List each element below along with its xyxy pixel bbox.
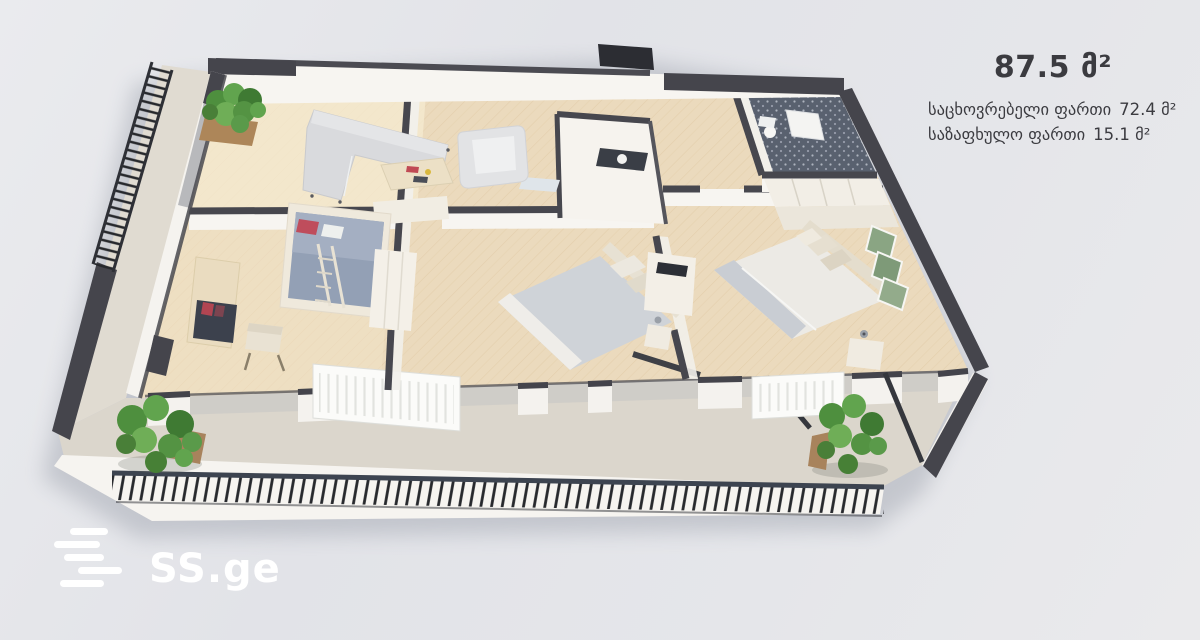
living-area-line: საცხოვრებელი ფართი72.4 მ² [928, 97, 1178, 122]
shower-tray [786, 110, 824, 140]
listing-image: 87.5 მ² საცხოვრებელი ფართი72.4 მ² საზაფხ… [0, 0, 1200, 640]
ssge-logo: SS.ge [54, 528, 281, 589]
wardrobe-room [764, 179, 899, 230]
summer-area-line: საზაფხულო ფართი15.1 მ² [928, 122, 1178, 147]
kids-wardrobe [369, 249, 417, 331]
desk-shelf [193, 300, 237, 343]
ssge-logo-bars-icon [54, 528, 134, 589]
bedroom-wardrobe [644, 252, 696, 316]
summer-area-label: საზაფხულო ფართი [928, 125, 1085, 144]
living-area-value: 72.4 მ² [1119, 100, 1176, 119]
total-area: 87.5 მ² [928, 50, 1178, 85]
nightstand [846, 338, 884, 370]
entrance-block [598, 44, 654, 70]
sink [617, 154, 627, 164]
area-summary: 87.5 მ² საცხოვრებელი ფართი72.4 მ² საზაფხ… [928, 50, 1178, 147]
books [201, 302, 214, 316]
summer-area-value: 15.1 მ² [1093, 125, 1150, 144]
toilet [764, 126, 776, 138]
nightstand [644, 324, 672, 350]
living-area-label: საცხოვრებელი ფართი [928, 100, 1111, 119]
ssge-logo-text: SS.ge [149, 549, 281, 589]
